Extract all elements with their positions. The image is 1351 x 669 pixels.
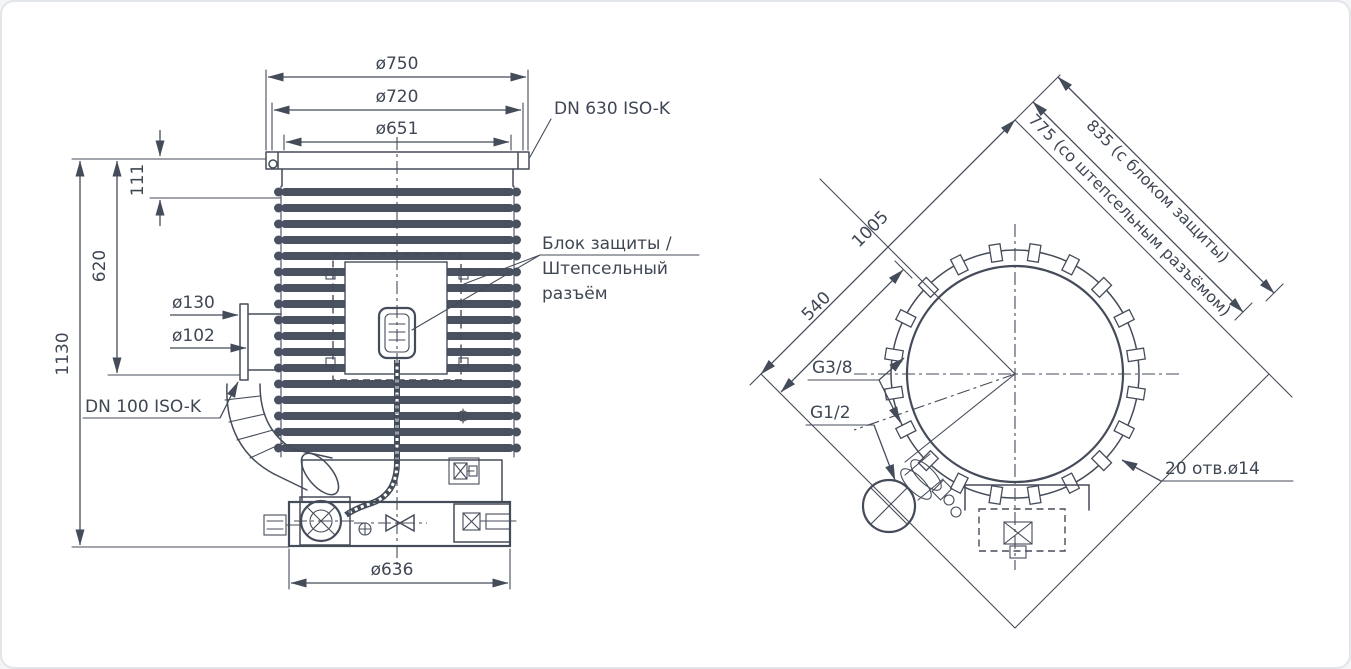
dim-dia720-label: ø720 bbox=[376, 87, 419, 107]
dim-111-label: 111 bbox=[128, 164, 148, 196]
flange-dn630-leader bbox=[530, 119, 551, 157]
technical-drawing: ø750 ø720 ø651 DN 630 ISO-K bbox=[2, 2, 1351, 669]
body-bolt bbox=[456, 409, 470, 423]
base-plug-assembly bbox=[264, 497, 354, 545]
g38-leader-2 bbox=[879, 380, 900, 422]
front-view: ø750 ø720 ø651 DN 630 ISO-K bbox=[53, 54, 699, 589]
flange-dn630-label: DN 630 ISO-K bbox=[554, 99, 671, 119]
dim-line-775 bbox=[1033, 102, 1243, 312]
g38-label: G3/8 bbox=[812, 358, 853, 378]
g12-label: G1/2 bbox=[810, 403, 851, 423]
dim-dia102-label: ø102 bbox=[172, 326, 215, 346]
dim-540-label: 540 bbox=[798, 288, 835, 325]
dim-835-tick bbox=[1266, 284, 1283, 301]
g12-leader bbox=[874, 425, 895, 480]
top-view: 1005 540 775 (со штепсельным разъёмом) 8… bbox=[750, 75, 1293, 628]
square-envelope bbox=[750, 75, 1292, 628]
dim-775-tick bbox=[1235, 303, 1252, 320]
bottom-fitting bbox=[1004, 522, 1032, 558]
callout-block-line1: Блок защиты / bbox=[542, 234, 672, 254]
dim-dia750-label: ø750 bbox=[376, 54, 419, 74]
dim-dia130-label: ø130 bbox=[172, 293, 215, 313]
base-fittings bbox=[354, 515, 427, 535]
drawing-sheet: ø750 ø720 ø651 DN 630 ISO-K bbox=[0, 0, 1351, 669]
dim-dia636-label: ø636 bbox=[371, 560, 414, 580]
holes-leader bbox=[1122, 460, 1161, 481]
dim-1130-label: 1130 bbox=[53, 332, 73, 375]
dim-620-label: 620 bbox=[90, 250, 110, 282]
dim-dia651-label: ø651 bbox=[376, 119, 419, 139]
callout-block-line3: разъём bbox=[542, 284, 608, 304]
top-view-port bbox=[863, 454, 961, 532]
callout-block-line2: Штепсельный bbox=[542, 259, 668, 279]
base-connector-box bbox=[449, 458, 479, 484]
base-component-box bbox=[454, 504, 516, 542]
dim-775-label: 775 (со штепсельным разъёмом) bbox=[1025, 110, 1235, 320]
port-dn100-label: DN 100 ISO-K bbox=[85, 397, 202, 417]
holes-label: 20 отв.ø14 bbox=[1165, 459, 1260, 479]
